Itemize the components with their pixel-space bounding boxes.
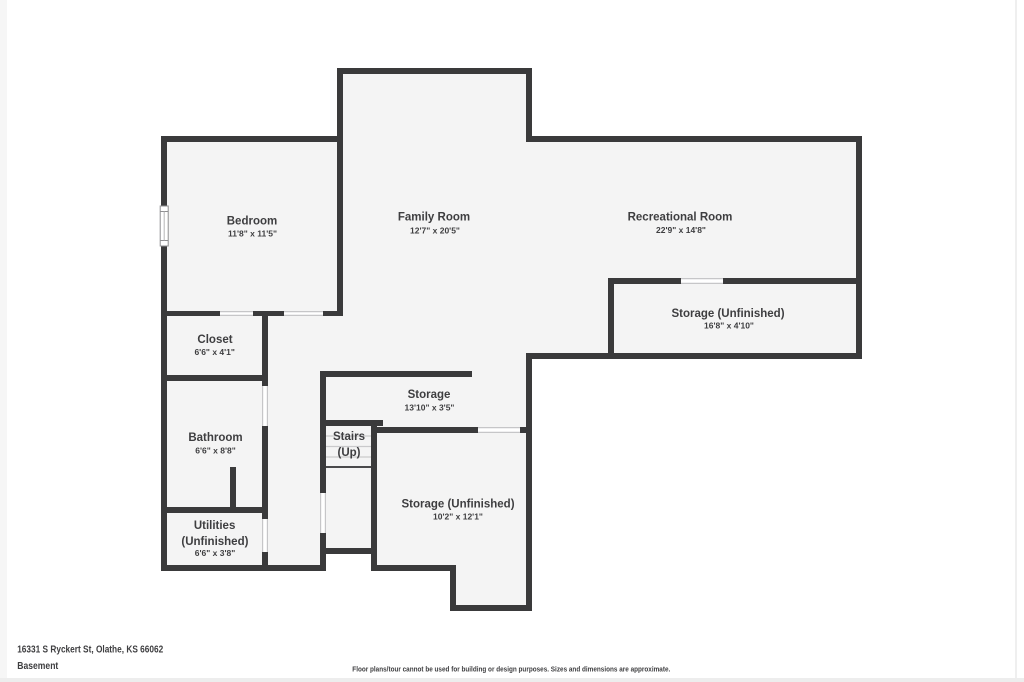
svg-text:Storage (Unfinished): Storage (Unfinished) — [671, 308, 784, 320]
svg-text:Bedroom: Bedroom — [227, 216, 277, 228]
svg-text:16331 S Ryckert St, Olathe, KS: 16331 S Ryckert St, Olathe, KS 66062 — [17, 643, 163, 655]
svg-text:Storage: Storage — [408, 389, 451, 401]
svg-text:Family Room: Family Room — [398, 212, 470, 224]
svg-text:6'6" x 8'8": 6'6" x 8'8" — [195, 446, 235, 456]
svg-text:12'7" x 20'5": 12'7" x 20'5" — [410, 226, 460, 236]
svg-text:Recreational Room: Recreational Room — [628, 211, 733, 223]
svg-text:16'8" x 4'10": 16'8" x 4'10" — [704, 321, 754, 331]
svg-text:Storage (Unfinished): Storage (Unfinished) — [401, 499, 514, 511]
svg-text:22'9" x 14'8": 22'9" x 14'8" — [656, 225, 706, 235]
svg-text:6'6" x 3'8": 6'6" x 3'8" — [195, 548, 235, 558]
svg-text:11'8" x 11'5": 11'8" x 11'5" — [228, 229, 277, 239]
svg-text:Basement: Basement — [17, 660, 58, 672]
svg-text:Bathroom: Bathroom — [188, 432, 242, 444]
svg-text:10'2" x 12'1": 10'2" x 12'1" — [433, 512, 483, 522]
svg-text:(Unfinished): (Unfinished) — [181, 536, 248, 548]
svg-text:6'6" x 4'1": 6'6" x 4'1" — [194, 347, 234, 357]
svg-text:13'10" x 3'5": 13'10" x 3'5" — [405, 403, 455, 413]
svg-text:(Up): (Up) — [338, 447, 361, 459]
svg-text:Stairs: Stairs — [333, 431, 365, 443]
svg-text:Closet: Closet — [197, 334, 232, 346]
svg-text:Floor plans/tour cannot be use: Floor plans/tour cannot be used for buil… — [352, 665, 670, 674]
svg-text:Utilities: Utilities — [194, 520, 236, 532]
